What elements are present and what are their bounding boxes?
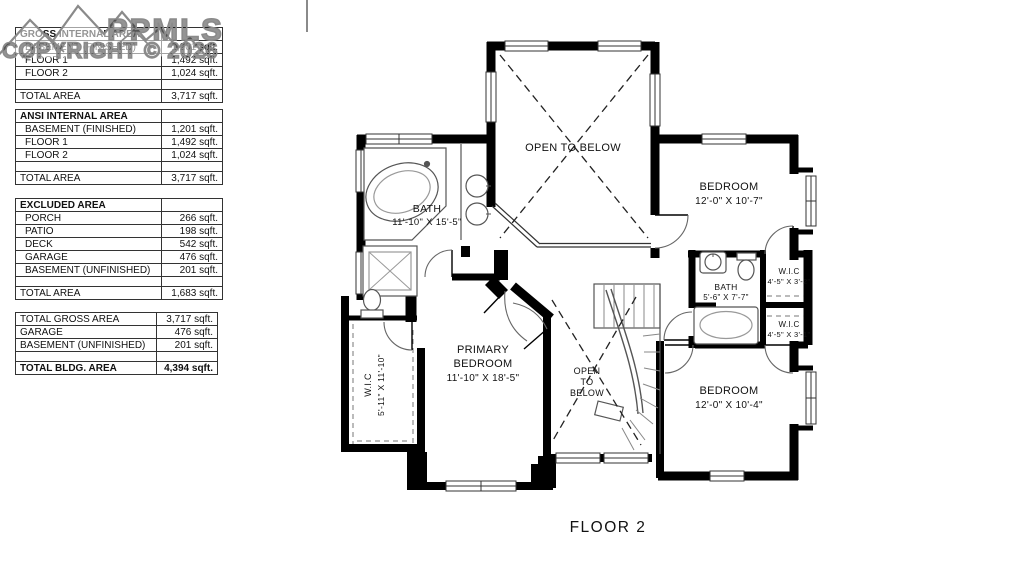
window xyxy=(505,41,548,51)
table-header: GROSS INTERNAL AREA xyxy=(16,28,162,41)
sink xyxy=(700,252,726,273)
window xyxy=(806,176,816,226)
total-row: TOTAL BLDG. AREA4,394 sqft. xyxy=(16,362,218,375)
table-row: TOTAL GROSS AREA3,717 sqft. xyxy=(16,313,218,326)
table-header: ANSI INTERNAL AREA xyxy=(16,110,162,123)
door-swing xyxy=(665,345,693,373)
closet-rod-lines xyxy=(353,296,804,444)
staircase xyxy=(594,284,660,454)
window xyxy=(598,41,641,51)
room-dims: 5'-6" X 7'-7" xyxy=(703,293,749,302)
spacer-row xyxy=(16,352,218,362)
wall-blocks xyxy=(407,246,556,490)
windows xyxy=(356,41,816,491)
window xyxy=(702,134,746,144)
total-row: TOTAL AREA3,717 sqft. xyxy=(16,90,223,103)
room-dims: 4'-5" X 3'-1" xyxy=(768,330,811,339)
table-row: FLOOR 11,492 sqft. xyxy=(16,54,223,67)
door-swing xyxy=(384,322,412,350)
half-walls xyxy=(492,203,651,247)
door-swing xyxy=(765,226,793,254)
room-dims: 4'-5" X 3'-2" xyxy=(768,277,811,286)
stairs-open-label: BELOW xyxy=(570,388,604,398)
room-label-bedroom: BEDROOM xyxy=(700,385,759,397)
room-dims: 5'-11" X 11'-10" xyxy=(376,354,386,416)
toilet xyxy=(361,290,383,319)
window xyxy=(806,372,816,424)
room-label-wic: W.I.C xyxy=(363,373,373,397)
table-row: GARAGE476 sqft. xyxy=(16,326,218,339)
walls xyxy=(345,42,813,480)
door-swing xyxy=(765,345,793,373)
table-row: FLOOR 21,024 sqft. xyxy=(16,149,223,162)
room-dims: 11'-10" X 15'-5" xyxy=(392,217,461,228)
table-row: BASEMENT (FINISHED)1,201 sqft. xyxy=(16,123,223,136)
spacer-row xyxy=(16,80,223,90)
window xyxy=(486,72,496,122)
shower xyxy=(363,246,417,296)
room-label-bath: BATH xyxy=(714,282,737,292)
table-row: PORCH266 sqft. xyxy=(16,212,223,225)
table-row: GARAGE476 sqft. xyxy=(16,251,223,264)
window xyxy=(650,74,660,126)
table-row: FLOOR 11,492 sqft. xyxy=(16,136,223,149)
spacer-row xyxy=(16,277,223,287)
stairs-open-label: TO xyxy=(581,377,594,387)
room-dims: 12'-0" X 10'-7" xyxy=(695,196,763,207)
doors xyxy=(384,215,793,373)
spacer-row xyxy=(16,162,223,172)
floor-caption: FLOOR 2 xyxy=(570,519,647,536)
floorplan-page: GROSS INTERNAL AREA BASEMENT (FINISHED)1… xyxy=(0,0,1024,576)
window xyxy=(556,453,600,463)
room-label-primary: PRIMARY xyxy=(457,344,509,356)
window xyxy=(356,252,366,294)
bathtub xyxy=(694,307,758,344)
toilet xyxy=(737,253,756,280)
door-swing xyxy=(664,312,692,340)
room-dims: 11'-10" X 18'-5" xyxy=(447,373,520,384)
table-header: EXCLUDED AREA xyxy=(16,199,162,212)
room-dims: 12'-0" X 10'-4" xyxy=(695,400,763,411)
window xyxy=(446,481,516,491)
window xyxy=(366,134,432,144)
window xyxy=(710,471,744,481)
table-row: BASEMENT (FINISHED)1,201 sqft. xyxy=(16,41,223,54)
ansi-internal-area-table: ANSI INTERNAL AREA BASEMENT (FINISHED)1,… xyxy=(15,109,223,185)
room-label-primary: BEDROOM xyxy=(454,358,513,370)
gross-internal-area-table: GROSS INTERNAL AREA BASEMENT (FINISHED)1… xyxy=(15,27,223,103)
open-to-below-dashes xyxy=(500,55,648,445)
room-label-bath: BATH xyxy=(413,203,441,215)
window xyxy=(604,453,648,463)
stairs-open-label: OPEN xyxy=(574,366,601,376)
table-row: PATIO198 sqft. xyxy=(16,225,223,238)
door-swing xyxy=(425,250,452,277)
total-row: TOTAL AREA3,717 sqft. xyxy=(16,172,223,185)
room-label-wic: W.I.C xyxy=(778,320,799,329)
vanity-sinks xyxy=(461,144,491,240)
excluded-area-table: EXCLUDED AREA PORCH266 sqft. PATIO198 sq… xyxy=(15,198,223,300)
total-row: TOTAL AREA1,683 sqft. xyxy=(16,287,223,300)
table-row: DECK542 sqft. xyxy=(16,238,223,251)
room-labels: OPEN TO BELOW BEDROOM 12'-0" X 10'-7" BA… xyxy=(363,142,810,416)
door-swing xyxy=(655,215,688,248)
room-label-bedroom: BEDROOM xyxy=(700,181,759,193)
window xyxy=(356,150,366,192)
table-row: BASEMENT (UNFINISHED)201 sqft. xyxy=(16,339,218,352)
table-row: BASEMENT (UNFINISHED)201 sqft. xyxy=(16,264,223,277)
table-row: FLOOR 21,024 sqft. xyxy=(16,67,223,80)
corner-bathtub xyxy=(358,148,447,240)
fixtures xyxy=(358,144,758,344)
room-label-wic: W.I.C xyxy=(778,267,799,276)
summary-area-table: TOTAL GROSS AREA3,717 sqft. GARAGE476 sq… xyxy=(15,312,218,375)
room-label-open-below: OPEN TO BELOW xyxy=(525,142,621,154)
double-door-swing xyxy=(484,291,547,349)
